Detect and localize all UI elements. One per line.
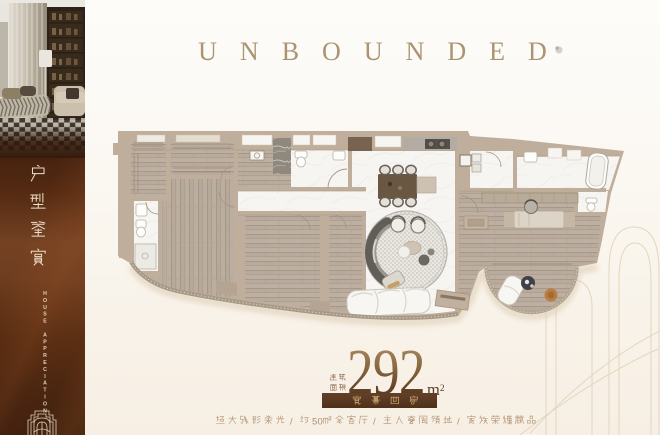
- svg-text:50: 50: [312, 417, 323, 428]
- svg-text:/: /: [290, 417, 293, 428]
- svg-text:/: /: [373, 417, 376, 428]
- svg-text:/: /: [457, 417, 460, 428]
